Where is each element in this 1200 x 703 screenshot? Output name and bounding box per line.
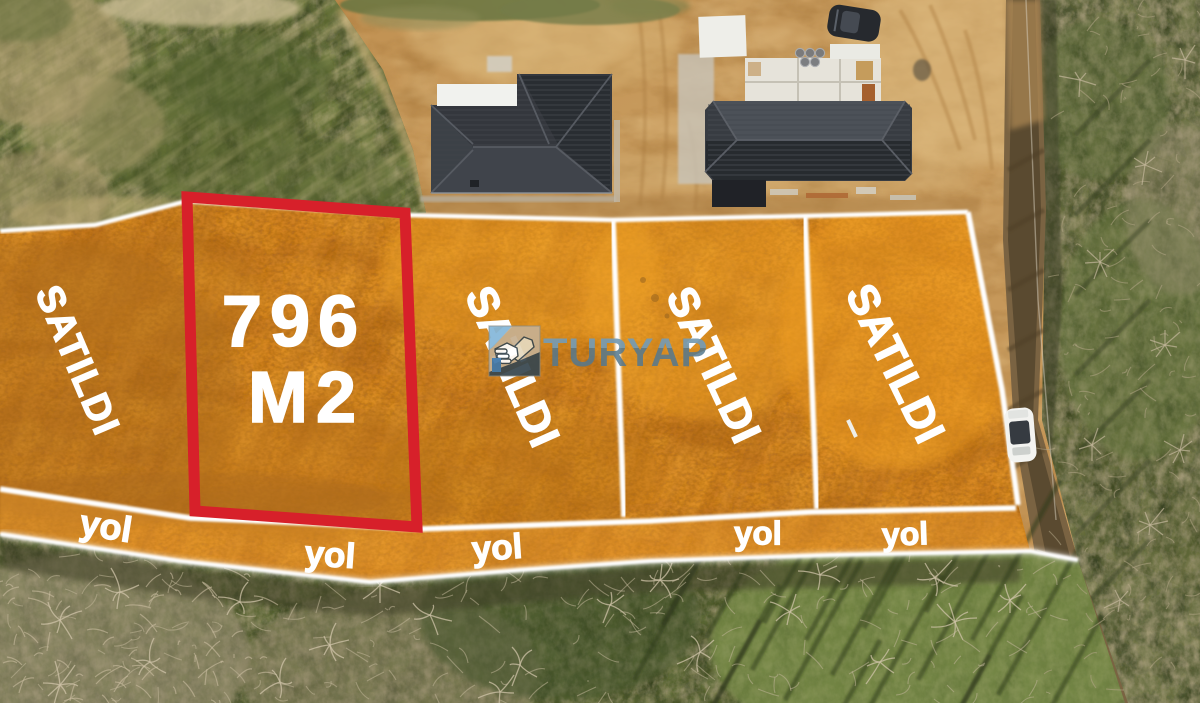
svg-text:yol: yol (303, 534, 356, 576)
svg-text:yol: yol (470, 527, 523, 569)
svg-text:yol: yol (881, 515, 928, 553)
svg-text:yol: yol (734, 515, 782, 552)
svg-text:M2: M2 (248, 358, 364, 438)
svg-text:796: 796 (222, 282, 366, 362)
svg-text:yol: yol (77, 502, 135, 551)
